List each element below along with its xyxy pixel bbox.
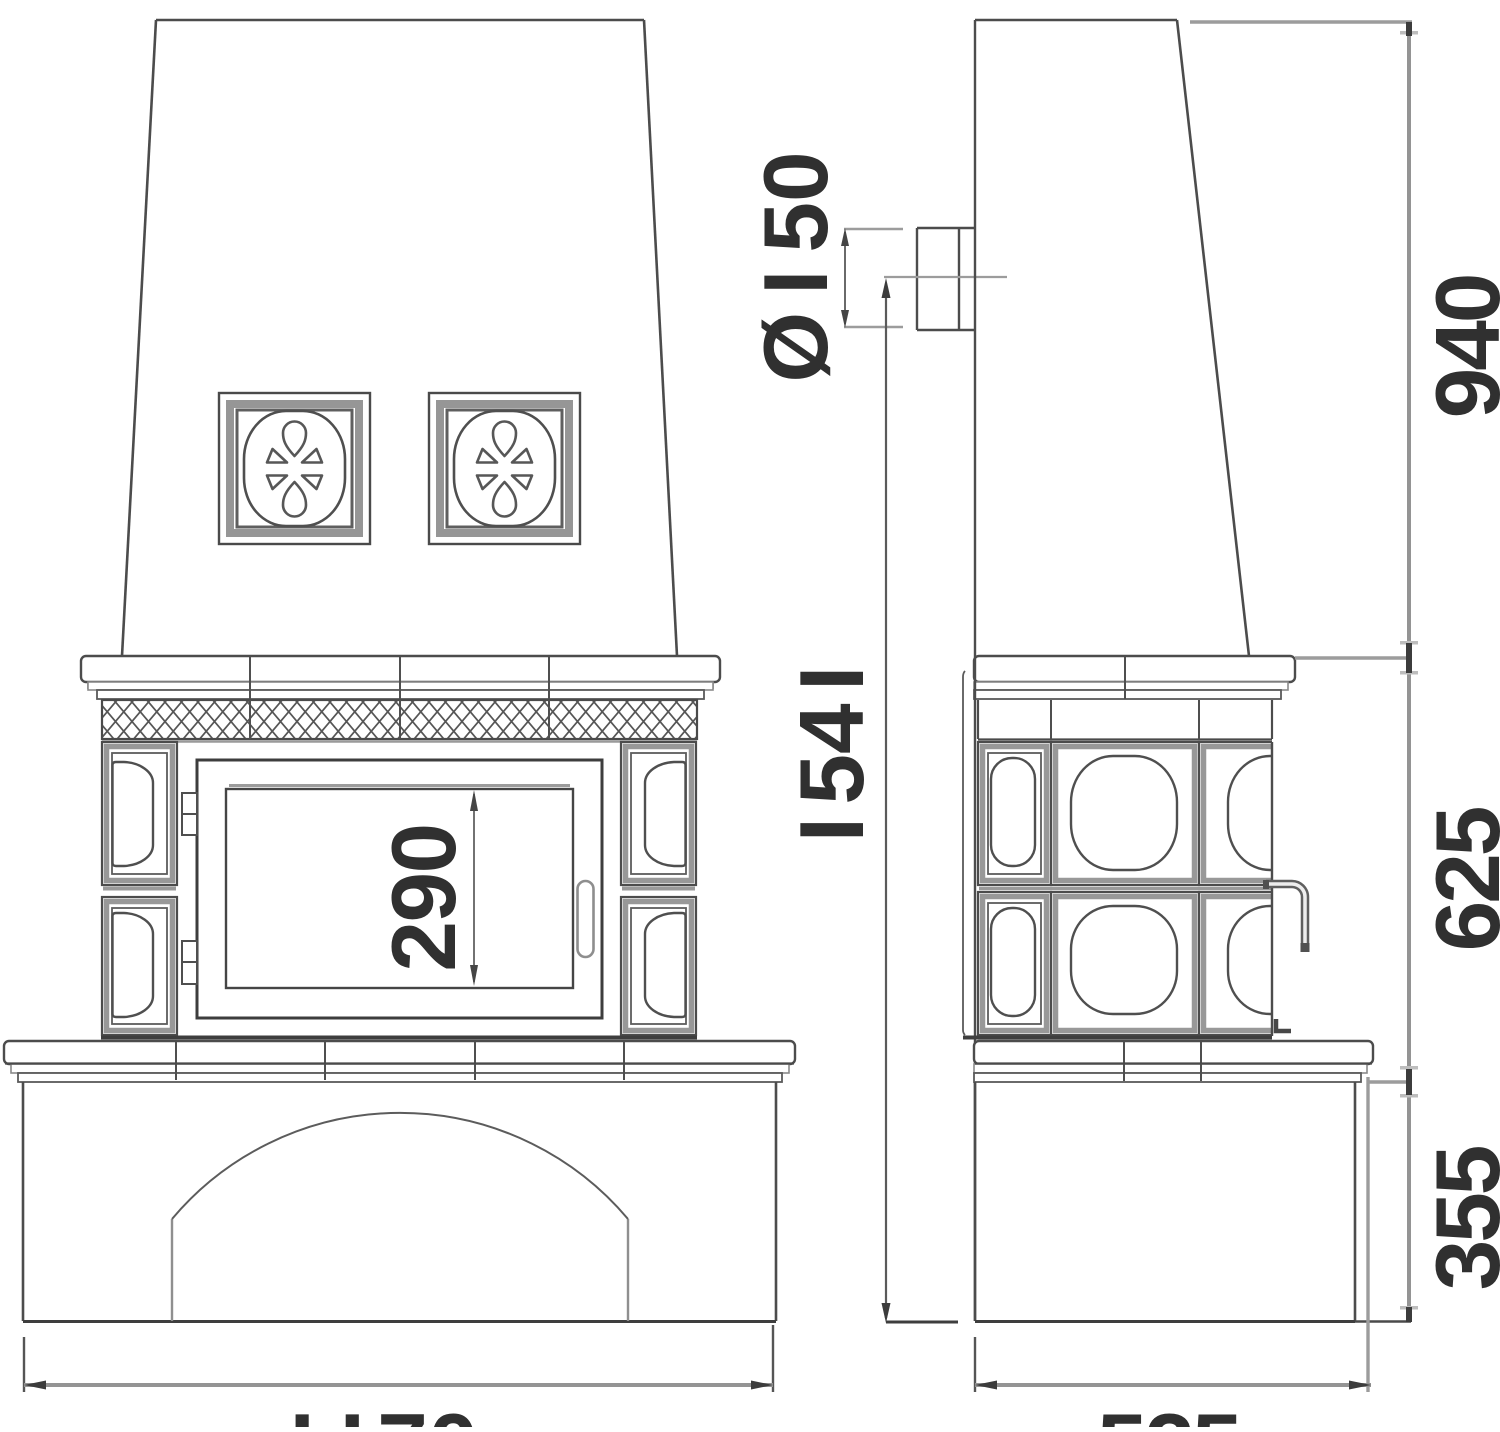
- svg-text:940: 940: [1418, 276, 1500, 419]
- svg-text:355: 355: [1418, 1146, 1500, 1290]
- svg-text:525: 525: [1097, 1396, 1241, 1427]
- svg-text:290: 290: [374, 824, 475, 971]
- svg-text:625: 625: [1418, 807, 1500, 951]
